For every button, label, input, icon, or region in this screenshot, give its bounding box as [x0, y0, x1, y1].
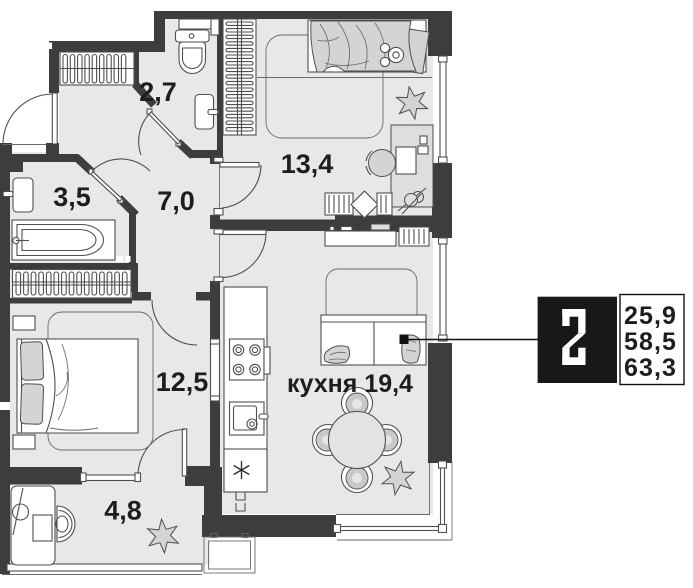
- svg-text:63,3: 63,3: [624, 354, 677, 382]
- svg-text:12,5: 12,5: [156, 367, 209, 397]
- svg-text:25,9: 25,9: [624, 302, 677, 330]
- svg-text:4,8: 4,8: [104, 496, 142, 526]
- svg-text:58,5: 58,5: [624, 328, 677, 356]
- svg-text:3,5: 3,5: [53, 182, 91, 212]
- svg-text:13,4: 13,4: [281, 149, 334, 179]
- svg-text:кухня 19,4: кухня 19,4: [287, 370, 413, 398]
- svg-text:2,7: 2,7: [139, 77, 177, 107]
- svg-text:7,0: 7,0: [157, 186, 195, 216]
